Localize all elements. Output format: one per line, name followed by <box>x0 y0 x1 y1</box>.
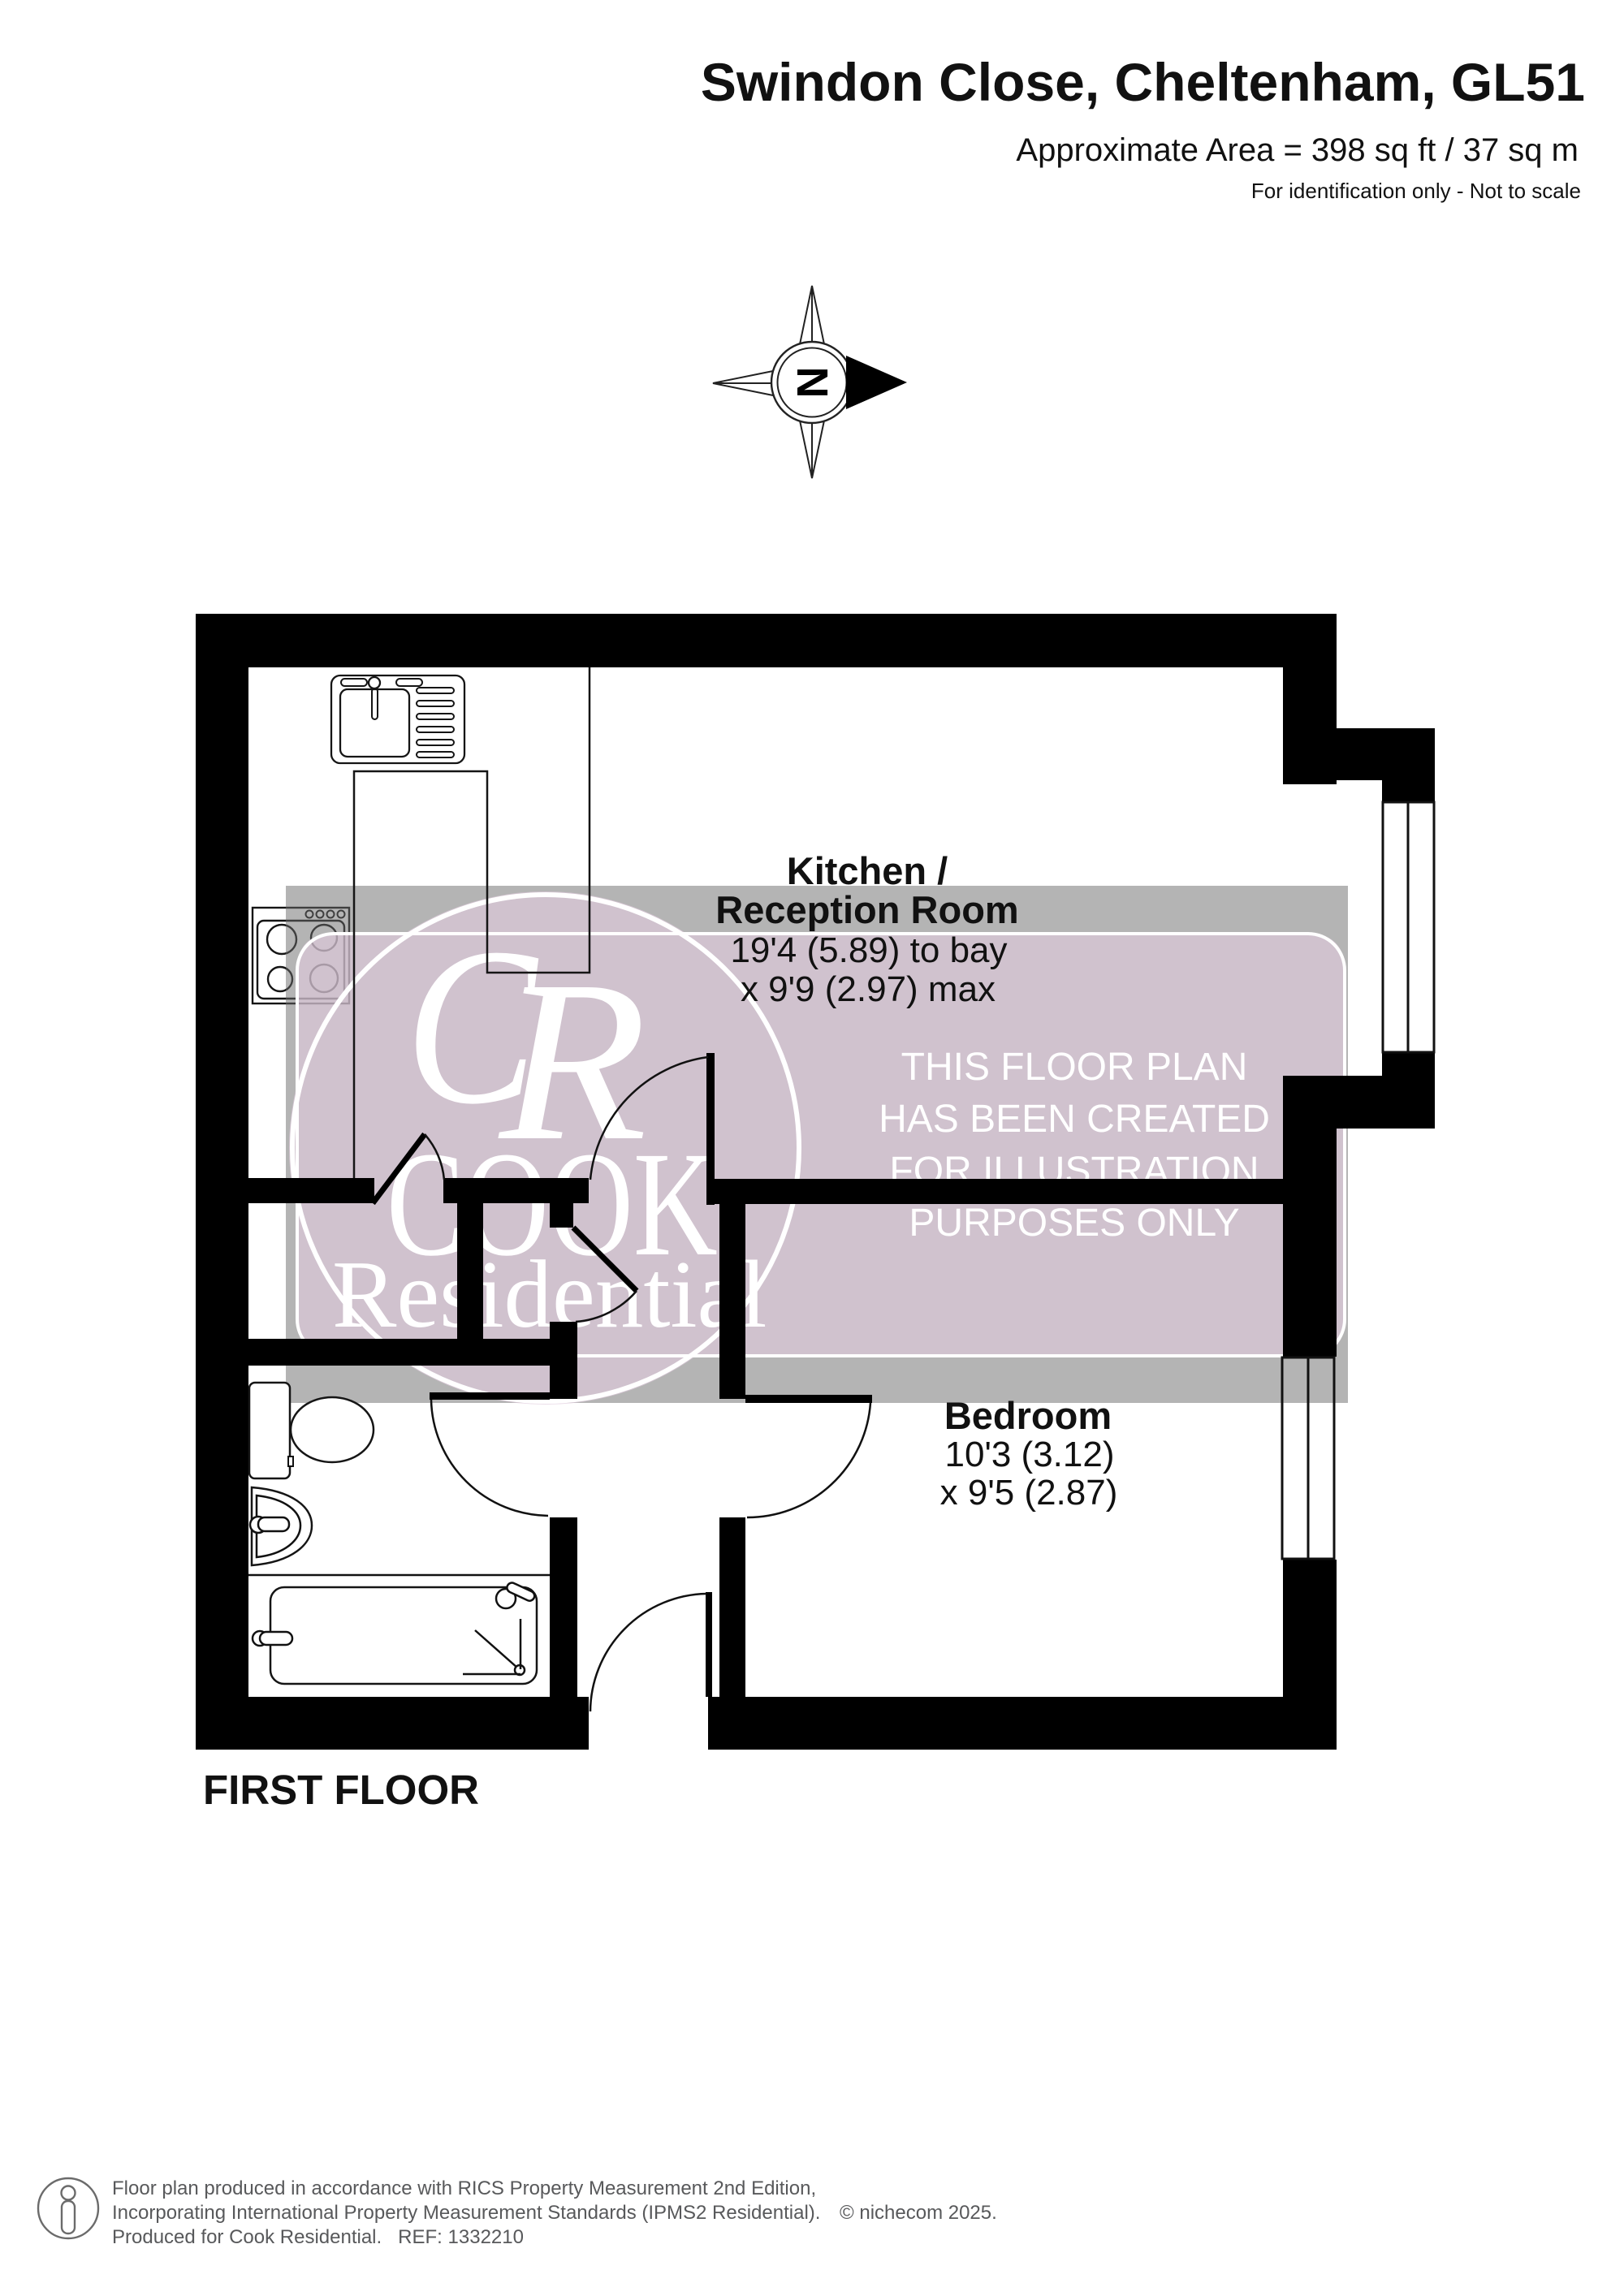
svg-text:© nichecom 2025.: © nichecom 2025. <box>840 2202 997 2224</box>
svg-text:HAS BEEN CREATED: HAS BEEN CREATED <box>879 1098 1270 1141</box>
svg-text:THIS FLOOR PLAN: THIS FLOOR PLAN <box>901 1046 1248 1089</box>
svg-text:x 9'9 (2.97) max: x 9'9 (2.97) max <box>741 969 996 1009</box>
svg-text:x 9'5 (2.87): x 9'5 (2.87) <box>940 1473 1118 1513</box>
svg-text:For identification only - Not: For identification only - Not to scale <box>1251 179 1581 203</box>
svg-text:FIRST FLOOR: FIRST FLOOR <box>203 1767 479 1813</box>
svg-text:Bedroom: Bedroom <box>944 1394 1112 1437</box>
svg-text:PURPOSES ONLY: PURPOSES ONLY <box>909 1202 1239 1245</box>
svg-text:Residential: Residential <box>332 1241 767 1348</box>
svg-text:Kitchen /: Kitchen / <box>787 849 948 892</box>
svg-text:10'3 (3.12): 10'3 (3.12) <box>945 1435 1115 1474</box>
svg-text:Floor plan produced in accorda: Floor plan produced in accordance with R… <box>112 2177 816 2199</box>
svg-text:Produced for Cook Residential.: Produced for Cook Residential. REF: 1332… <box>112 2226 524 2248</box>
svg-text:N: N <box>788 367 836 399</box>
svg-text:Reception Room: Reception Room <box>715 888 1018 931</box>
svg-text:Swindon Close, Cheltenham, GL5: Swindon Close, Cheltenham, GL51 <box>701 52 1585 112</box>
svg-text:Incorporating International Pr: Incorporating International Property Mea… <box>112 2202 820 2224</box>
svg-text:Approximate Area = 398 sq ft /: Approximate Area = 398 sq ft / 37 sq m <box>1016 132 1579 168</box>
svg-text:19'4 (5.89) to bay: 19'4 (5.89) to bay <box>730 930 1007 970</box>
